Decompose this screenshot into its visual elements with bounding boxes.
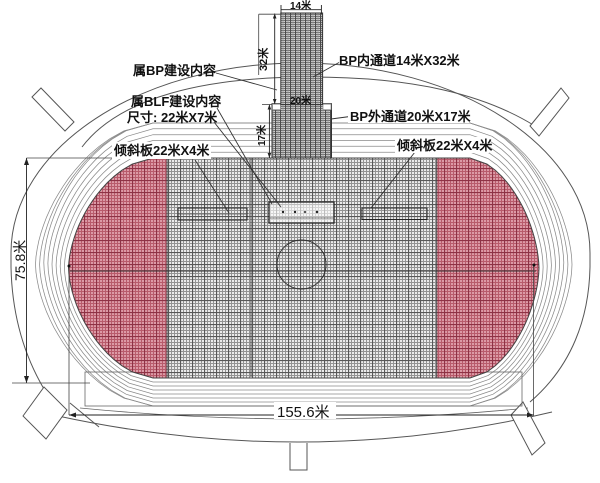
svg-text:属BLF建设内容: 属BLF建设内容 — [131, 94, 221, 109]
svg-text:属BP建设内容: 属BP建设内容 — [133, 63, 216, 78]
svg-text:32米: 32米 — [256, 47, 270, 71]
svg-text:20米: 20米 — [290, 94, 312, 107]
svg-text:17米: 17米 — [255, 124, 268, 146]
svg-text:尺寸: 22米X7米: 尺寸: 22米X7米 — [127, 110, 218, 125]
svg-text:155.6米: 155.6米 — [277, 404, 330, 421]
svg-text:BP外通道20米X17米: BP外通道20米X17米 — [350, 109, 472, 124]
svg-text:倾斜板22米X4米: 倾斜板22米X4米 — [113, 143, 210, 158]
svg-text:14米: 14米 — [290, 0, 312, 12]
svg-text:倾斜板22米X4米: 倾斜板22米X4米 — [396, 138, 493, 153]
svg-text:BP内通道14米X32米: BP内通道14米X32米 — [339, 53, 461, 68]
svg-text:75.8米: 75.8米 — [12, 240, 28, 281]
